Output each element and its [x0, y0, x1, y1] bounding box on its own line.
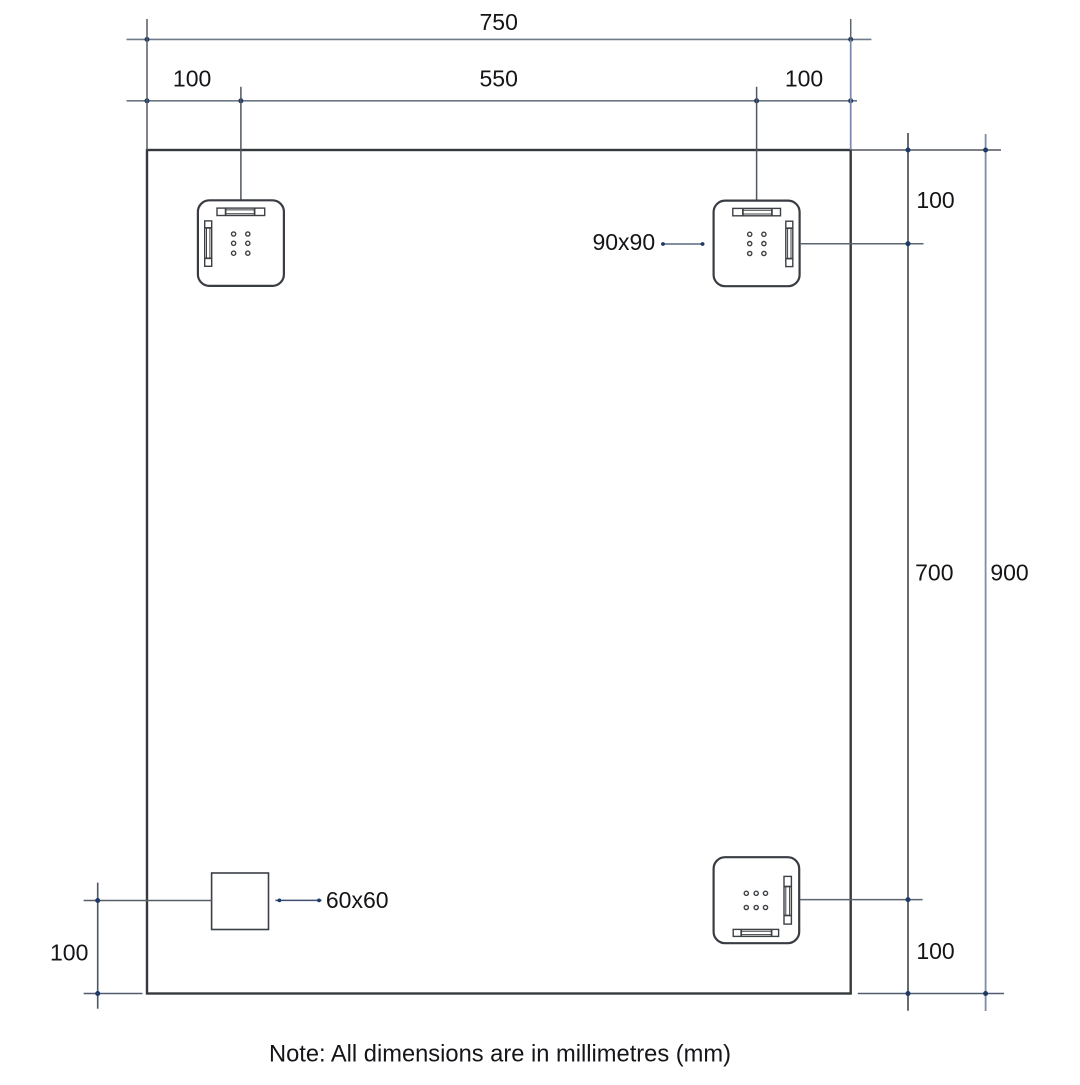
- svg-text:100: 100: [50, 940, 88, 966]
- svg-text:Note: All dimensions are in mi: Note: All dimensions are in millimetres …: [269, 1042, 731, 1068]
- svg-text:100: 100: [916, 938, 954, 964]
- svg-text:100: 100: [173, 65, 211, 91]
- svg-text:700: 700: [915, 559, 953, 585]
- svg-text:60x60: 60x60: [326, 887, 389, 913]
- svg-text:550: 550: [480, 65, 518, 91]
- svg-text:100: 100: [785, 65, 823, 91]
- svg-text:750: 750: [480, 9, 518, 35]
- svg-text:900: 900: [990, 559, 1028, 585]
- svg-text:100: 100: [916, 187, 954, 213]
- svg-text:90x90: 90x90: [592, 229, 655, 255]
